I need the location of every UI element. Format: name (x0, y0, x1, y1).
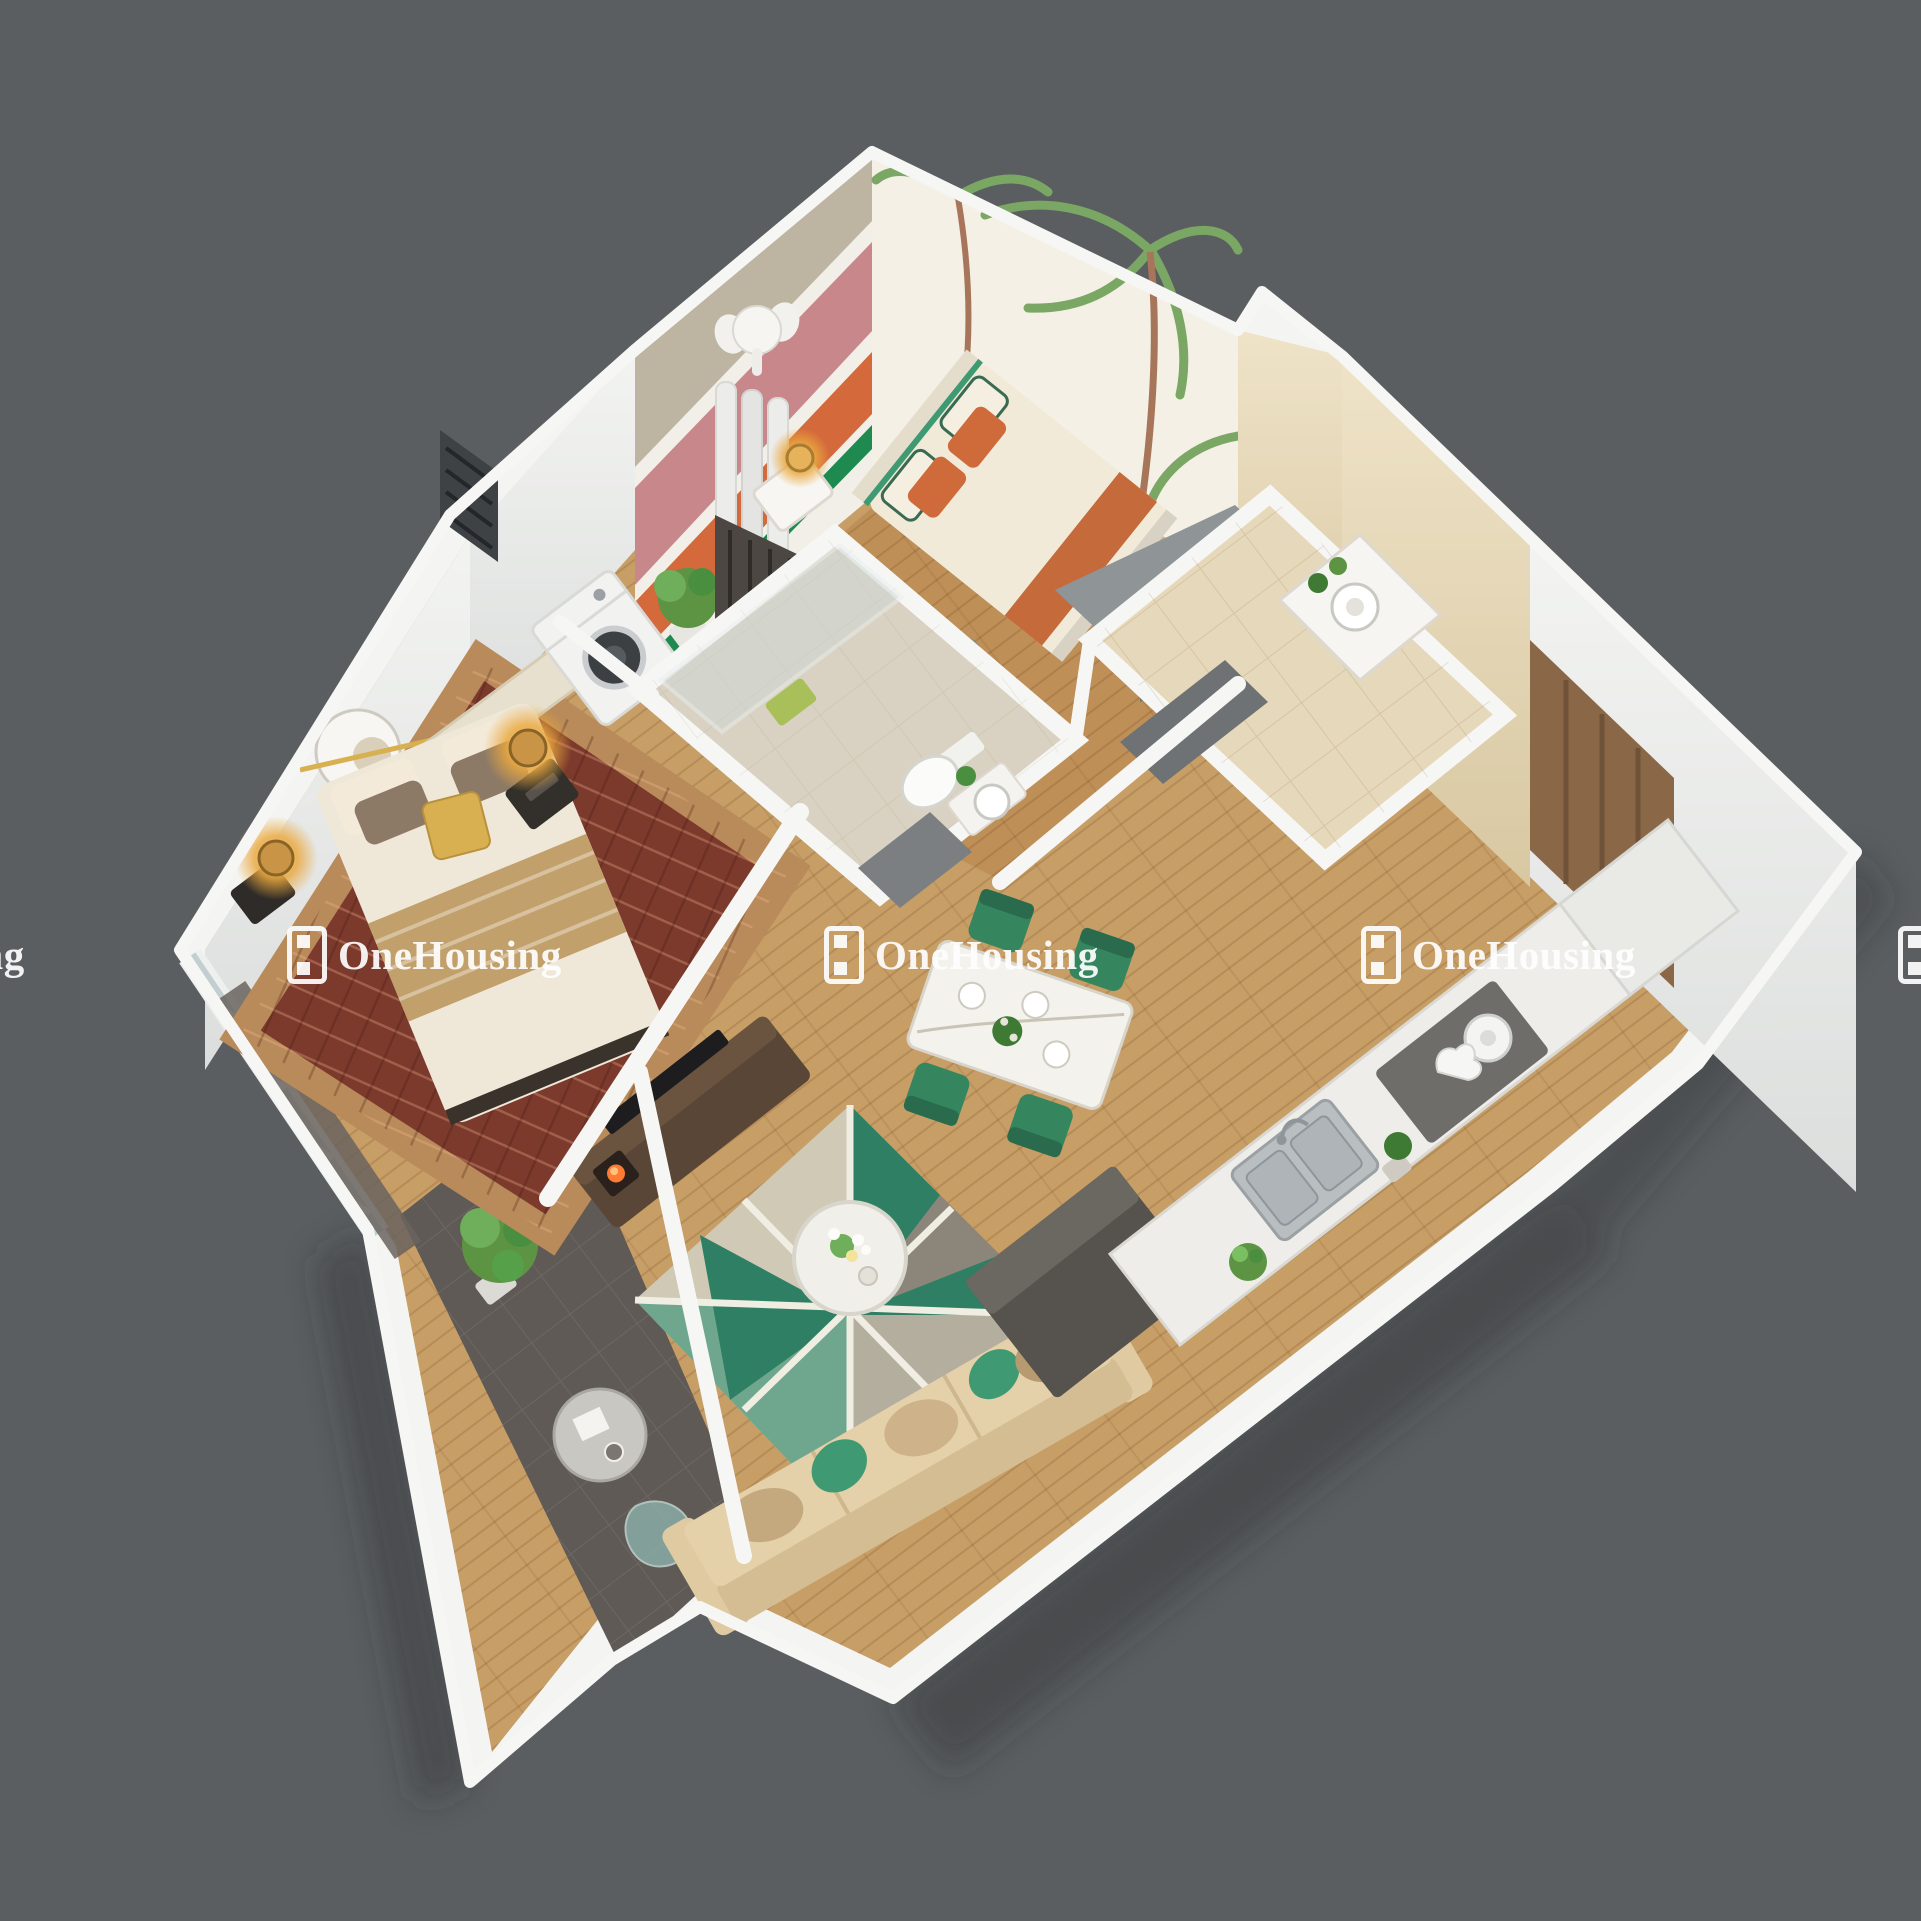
floor-plan-screenshot: OneHousing OneHousing OneHousing OneHous… (0, 0, 1921, 1921)
balcony-table (554, 1389, 646, 1481)
bedside-lamp-right (510, 730, 546, 766)
bedside-lamp-left (259, 841, 293, 875)
floor-plan-render (0, 0, 1921, 1921)
bedroom2-lamp (787, 445, 813, 471)
coffee-table (794, 1202, 906, 1314)
succulent (1229, 1243, 1267, 1281)
